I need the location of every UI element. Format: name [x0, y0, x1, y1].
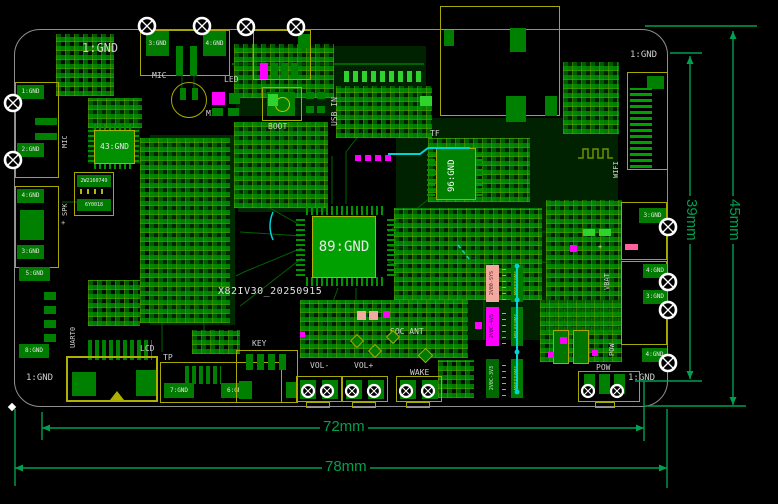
mounting-holes: [5, 18, 676, 397]
dimension-lines: [15, 26, 757, 488]
dimension-45mm: 45mm: [726, 196, 743, 244]
dimension-72mm: 72mm: [320, 419, 368, 436]
annotations-layer: [0, 0, 778, 504]
pcb-layout-view: 1:GND 2:GND 4:GND 3:GND 5:GND 8:GND 3:GN…: [0, 0, 778, 504]
dimension-39mm: 39mm: [683, 196, 700, 244]
dimension-arrows: [15, 31, 737, 472]
dimension-78mm: 78mm: [322, 459, 370, 476]
highlighted-net-cyan: [270, 148, 517, 392]
